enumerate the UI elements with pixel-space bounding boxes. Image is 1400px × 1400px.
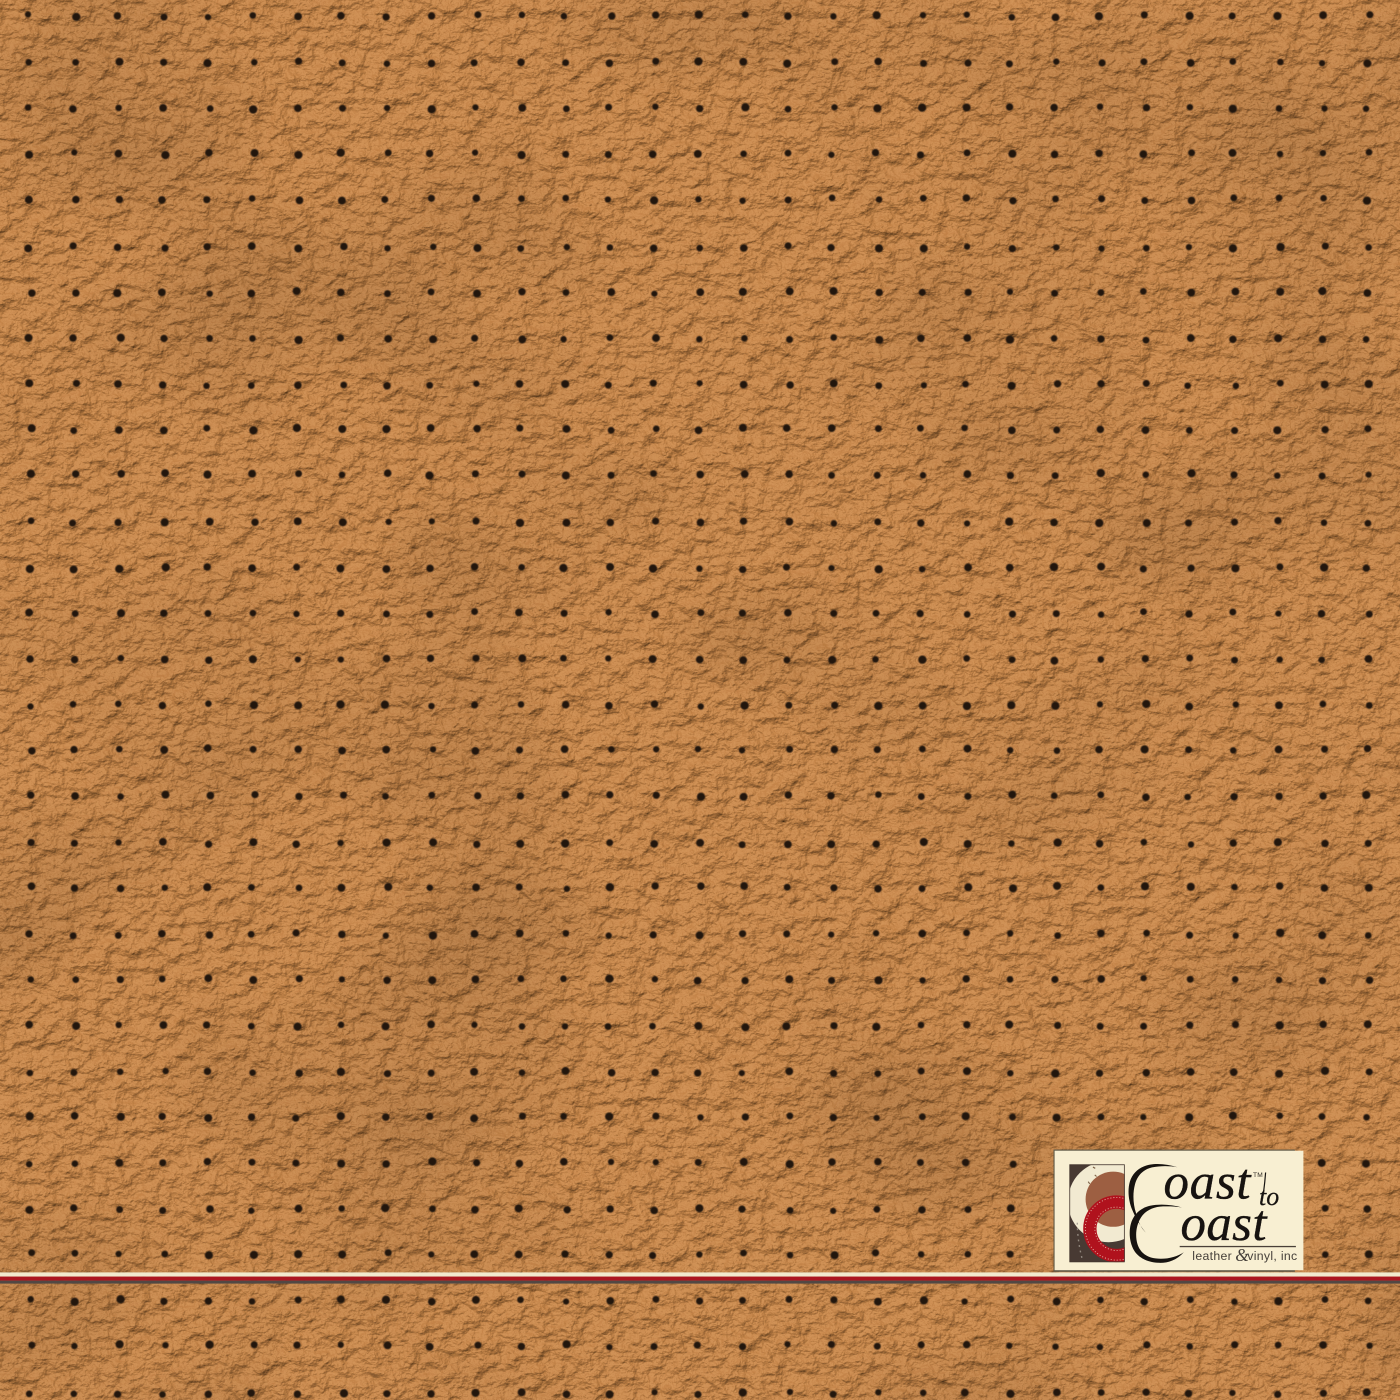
svg-text:oast: oast <box>1181 1196 1269 1252</box>
svg-text:TM: TM <box>1253 1172 1263 1179</box>
svg-text:leather: leather <box>1192 1249 1232 1263</box>
svg-text:vinyl, inc: vinyl, inc <box>1247 1249 1297 1263</box>
